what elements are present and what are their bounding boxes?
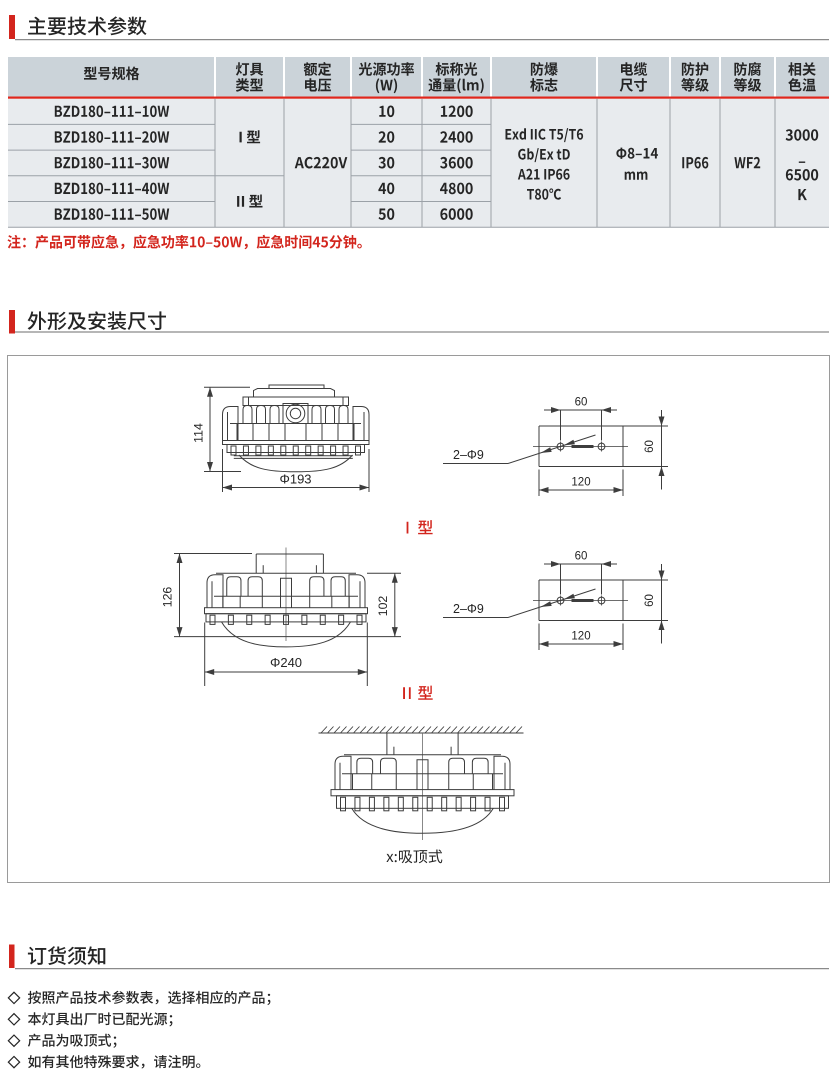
svg-text:120: 120 (571, 477, 590, 489)
svg-text:60: 60 (575, 397, 588, 409)
svg-text:Φ193: Φ193 (279, 472, 311, 487)
svg-text:2–Φ9: 2–Φ9 (453, 448, 484, 462)
svg-text:60: 60 (644, 594, 656, 607)
svg-text:114: 114 (192, 423, 206, 443)
svg-text:60: 60 (644, 440, 656, 453)
svg-text:60: 60 (575, 551, 588, 563)
svg-text:102: 102 (376, 596, 390, 617)
svg-text:120: 120 (571, 631, 590, 643)
svg-text:126: 126 (161, 587, 175, 608)
svg-text:2–Φ9: 2–Φ9 (453, 602, 484, 616)
svg-text:Φ240: Φ240 (270, 655, 302, 670)
